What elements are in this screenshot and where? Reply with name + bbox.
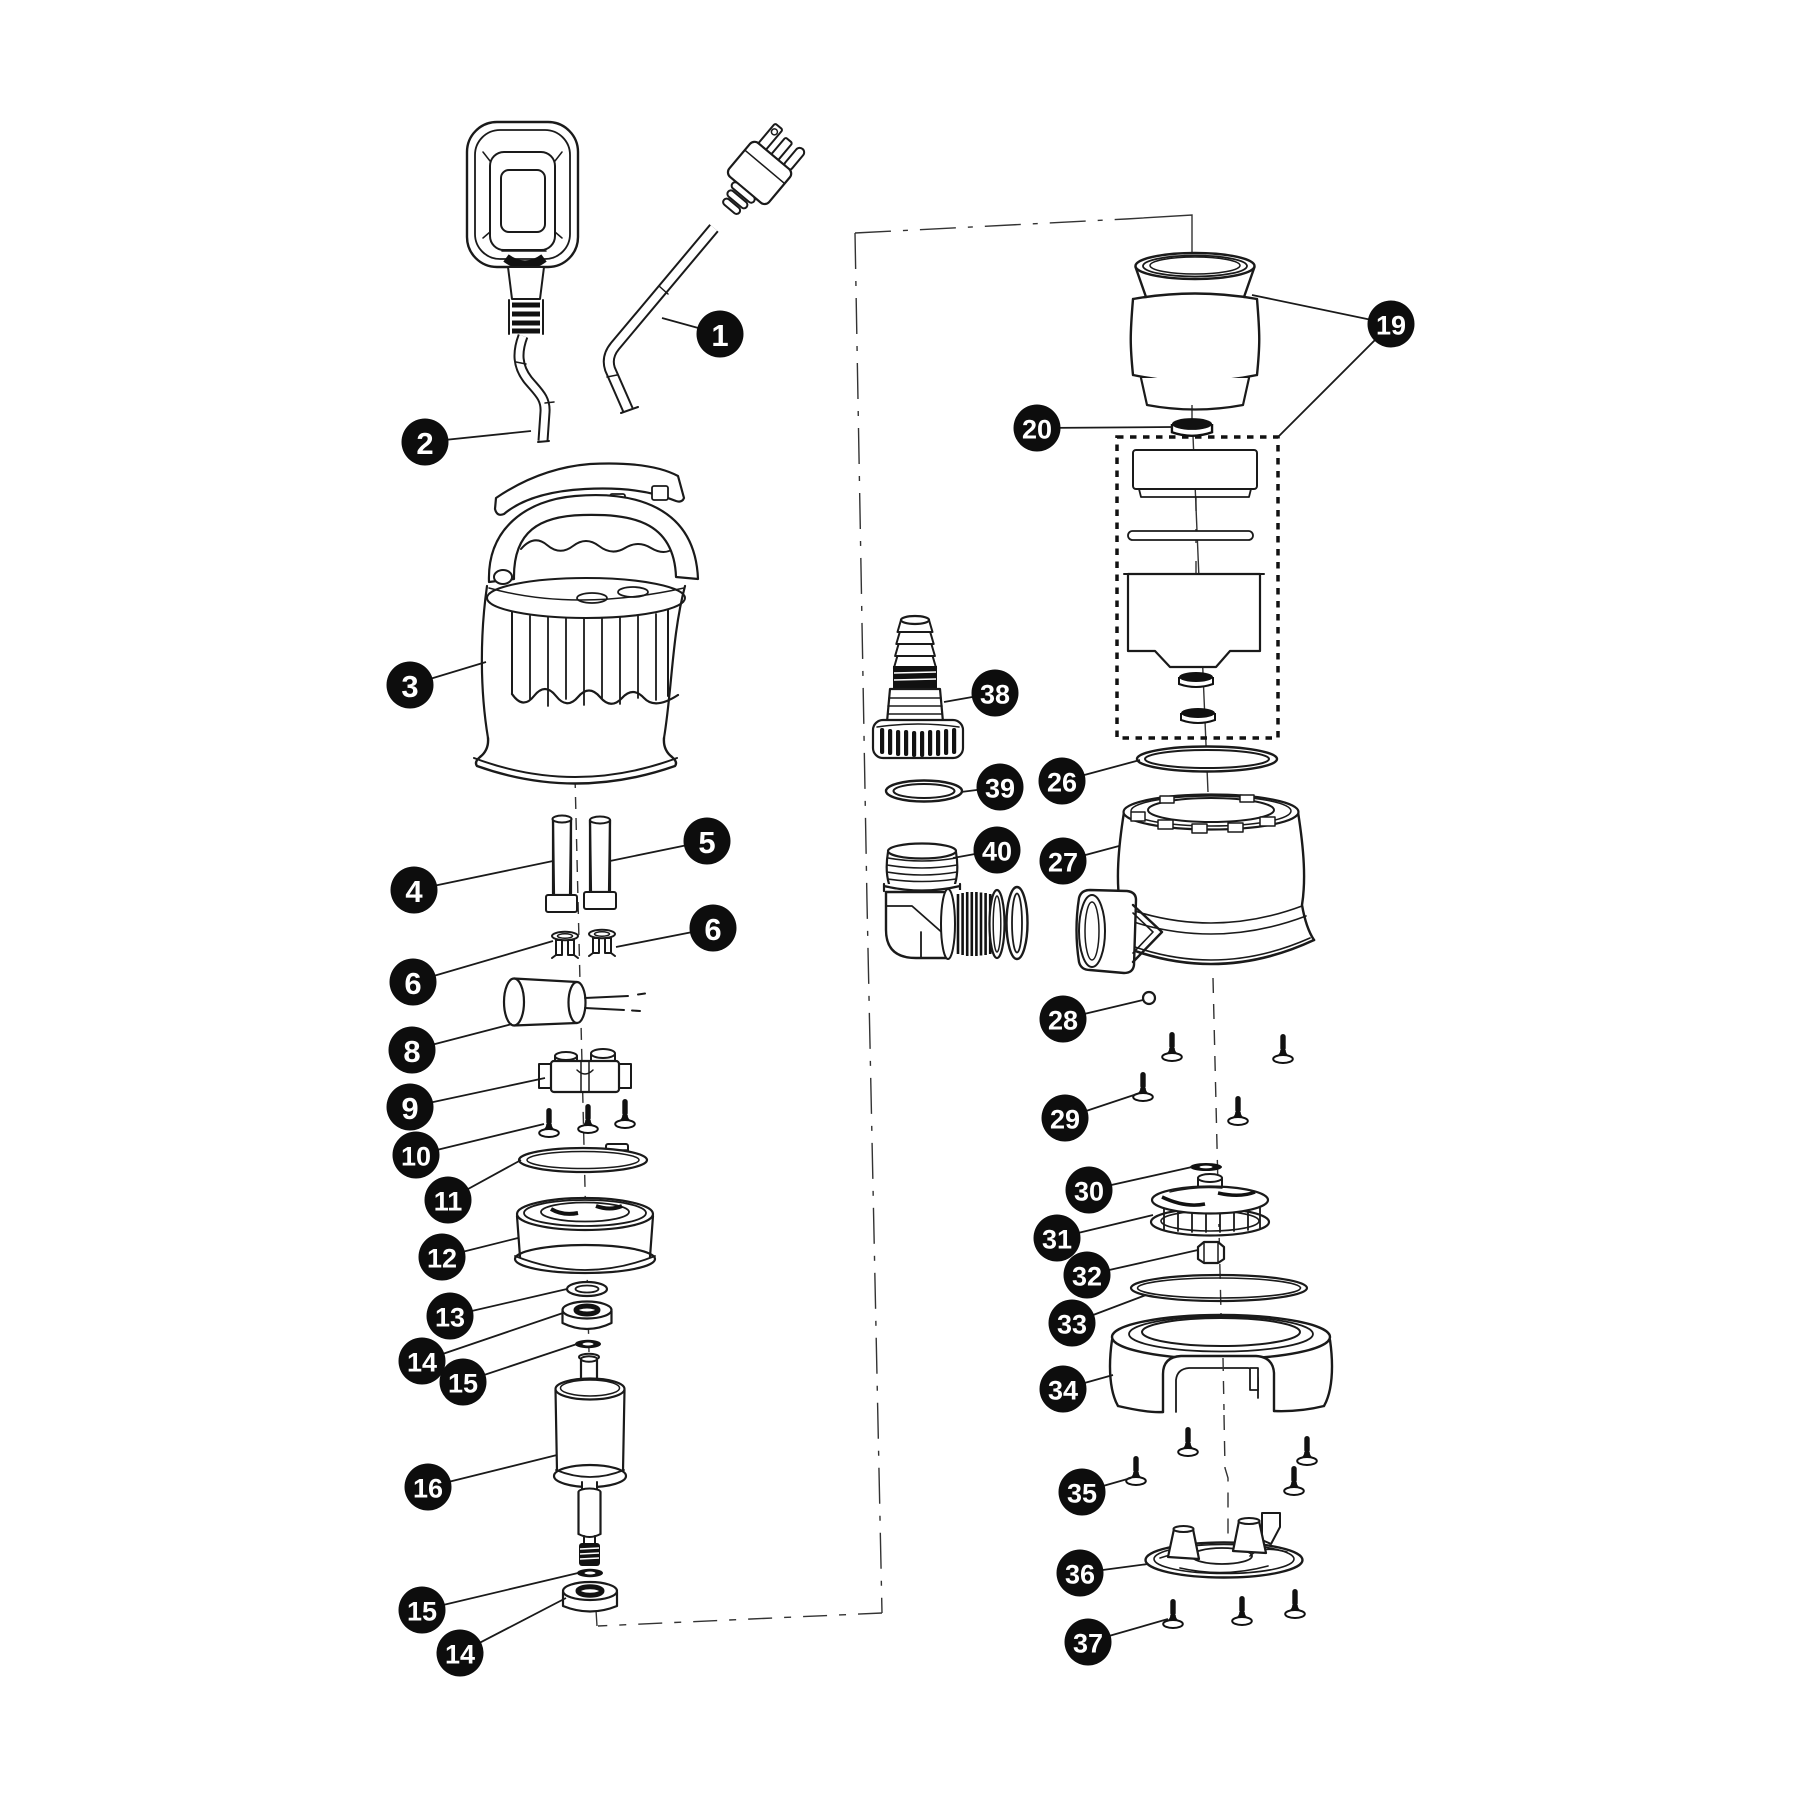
- callout-number: 3: [401, 669, 418, 704]
- suction-plate-drawing: [1146, 1513, 1303, 1578]
- bottom-screws-drawing: [1163, 1589, 1305, 1628]
- callout-12: 12: [419, 1234, 519, 1281]
- pump-housing-drawing: [474, 464, 698, 784]
- callout-5: 5: [610, 818, 731, 865]
- callout-35: 35: [1059, 1469, 1132, 1516]
- float-switch-drawing: [467, 122, 578, 442]
- thrust-washer-drawing: [575, 1340, 601, 1348]
- base-screws-drawing: [1126, 1427, 1317, 1495]
- callout-4: 4: [391, 861, 554, 914]
- callout-number: 37: [1073, 1629, 1103, 1659]
- callout-number: 15: [448, 1369, 478, 1399]
- motor-assembly-box: [1117, 437, 1278, 738]
- callout-3: 3: [387, 662, 487, 709]
- callout-13: 13: [427, 1289, 568, 1340]
- motor-can-drawing: [1128, 574, 1260, 667]
- pin-drawing: [1143, 992, 1155, 1004]
- callout-number: 32: [1072, 1262, 1102, 1292]
- power-cord-drawing: [607, 119, 810, 413]
- callout-number: 9: [401, 1091, 418, 1126]
- pump-base-drawing: [1110, 1315, 1332, 1415]
- callout-number: 15: [407, 1597, 437, 1627]
- callout-32: 32: [1064, 1250, 1199, 1299]
- callout-number: 33: [1057, 1310, 1087, 1340]
- base-oring-drawing: [1131, 1275, 1307, 1301]
- callout-26: 26: [1039, 758, 1141, 805]
- washer-drawing: [567, 1282, 607, 1296]
- callout-15: 15: [399, 1573, 579, 1634]
- callout-11: 11: [425, 1160, 522, 1224]
- callout-number: 19: [1376, 311, 1406, 341]
- callout-number: 4: [405, 874, 423, 909]
- diagram-canvas: 1234566891011121314151615141920262728293…: [0, 0, 1800, 1800]
- callout-number: 39: [985, 774, 1015, 804]
- callout-number: 2: [416, 426, 433, 461]
- callout-40: 40: [953, 827, 1021, 874]
- capacitor-drawing: [504, 979, 645, 1026]
- callout-number: 10: [401, 1142, 431, 1172]
- shaft-washer-drawing: [1190, 1163, 1222, 1171]
- callout-37: 37: [1065, 1619, 1169, 1666]
- callout-number: 26: [1047, 768, 1077, 798]
- volute-housing-drawing: [1077, 795, 1315, 974]
- callout-number: 8: [403, 1034, 420, 1069]
- screws-upper-left-drawing: [539, 1099, 635, 1137]
- callout-number: 28: [1048, 1006, 1078, 1036]
- callout-number: 35: [1067, 1479, 1097, 1509]
- callout-number: 14: [407, 1348, 437, 1378]
- callout-10: 10: [393, 1124, 545, 1179]
- callout-number: 27: [1048, 848, 1078, 878]
- callout-number: 5: [698, 825, 715, 860]
- rotor-shaft-drawing: [554, 1354, 626, 1566]
- impeller-nut-drawing: [1198, 1242, 1224, 1263]
- callout-number: 30: [1074, 1177, 1104, 1207]
- impeller-drawing: [1151, 1174, 1269, 1236]
- callout-36: 36: [1057, 1550, 1149, 1597]
- hose-coupling-drawing: [1131, 253, 1260, 410]
- callout-number: 13: [435, 1303, 465, 1333]
- callout-2: 2: [402, 419, 532, 466]
- callout-number: 6: [404, 966, 421, 1001]
- callout-number: 31: [1042, 1225, 1072, 1255]
- hose-barb-adapter-drawing: [873, 616, 963, 758]
- callout-20: 20: [1014, 405, 1174, 452]
- callout-14: 14: [437, 1598, 567, 1677]
- lower-bearing-drawing: [563, 1582, 617, 1612]
- plug-drawing: [709, 119, 810, 225]
- callout-number: 1: [711, 318, 728, 353]
- motor-screws-drawing: [1133, 1032, 1293, 1125]
- callout-39: 39: [961, 764, 1024, 811]
- callout-number: 40: [982, 837, 1012, 867]
- callout-9: 9: [387, 1078, 546, 1131]
- callout-38: 38: [944, 670, 1019, 717]
- callout-number: 16: [413, 1474, 443, 1504]
- callout-16: 16: [405, 1455, 558, 1511]
- spacer-plate-drawing: [1128, 531, 1253, 540]
- callout-19: 19: [1252, 295, 1415, 437]
- callout-number: 34: [1048, 1376, 1078, 1406]
- lower-thrust-washer-drawing: [577, 1569, 603, 1577]
- callout-number: 14: [445, 1640, 475, 1670]
- callout-number: 6: [704, 912, 721, 947]
- callout-29: 29: [1042, 1094, 1138, 1142]
- gasket-plate-drawing: [519, 1144, 647, 1172]
- exploded-parts-diagram: 1234566891011121314151615141920262728293…: [0, 0, 1800, 1800]
- motor-cover-cup-drawing: [515, 1198, 655, 1273]
- callout-number: 20: [1022, 415, 1052, 445]
- callout-8: 8: [389, 1024, 513, 1074]
- callout-1: 1: [662, 311, 744, 358]
- retainer-clips-drawing: [552, 930, 615, 958]
- callout-number: 12: [427, 1244, 457, 1274]
- standoff-tubes-drawing: [546, 816, 616, 913]
- grommet-drawing: [1172, 418, 1212, 436]
- callout-number: 29: [1050, 1105, 1080, 1135]
- stator-drawing: [1133, 450, 1257, 489]
- callout-27: 27: [1040, 838, 1120, 885]
- callout-34: 34: [1040, 1366, 1114, 1413]
- callout-number: 11: [434, 1187, 463, 1217]
- callout-28: 28: [1040, 996, 1144, 1043]
- callout-number: 36: [1065, 1560, 1095, 1590]
- callout-number: 38: [980, 680, 1010, 710]
- switch-block-drawing: [539, 1049, 631, 1092]
- callout-6: 6: [616, 905, 737, 952]
- bearing-drawing: [563, 1302, 612, 1330]
- adapter-oring-drawing: [886, 781, 962, 802]
- volute-oring-drawing: [1137, 747, 1277, 772]
